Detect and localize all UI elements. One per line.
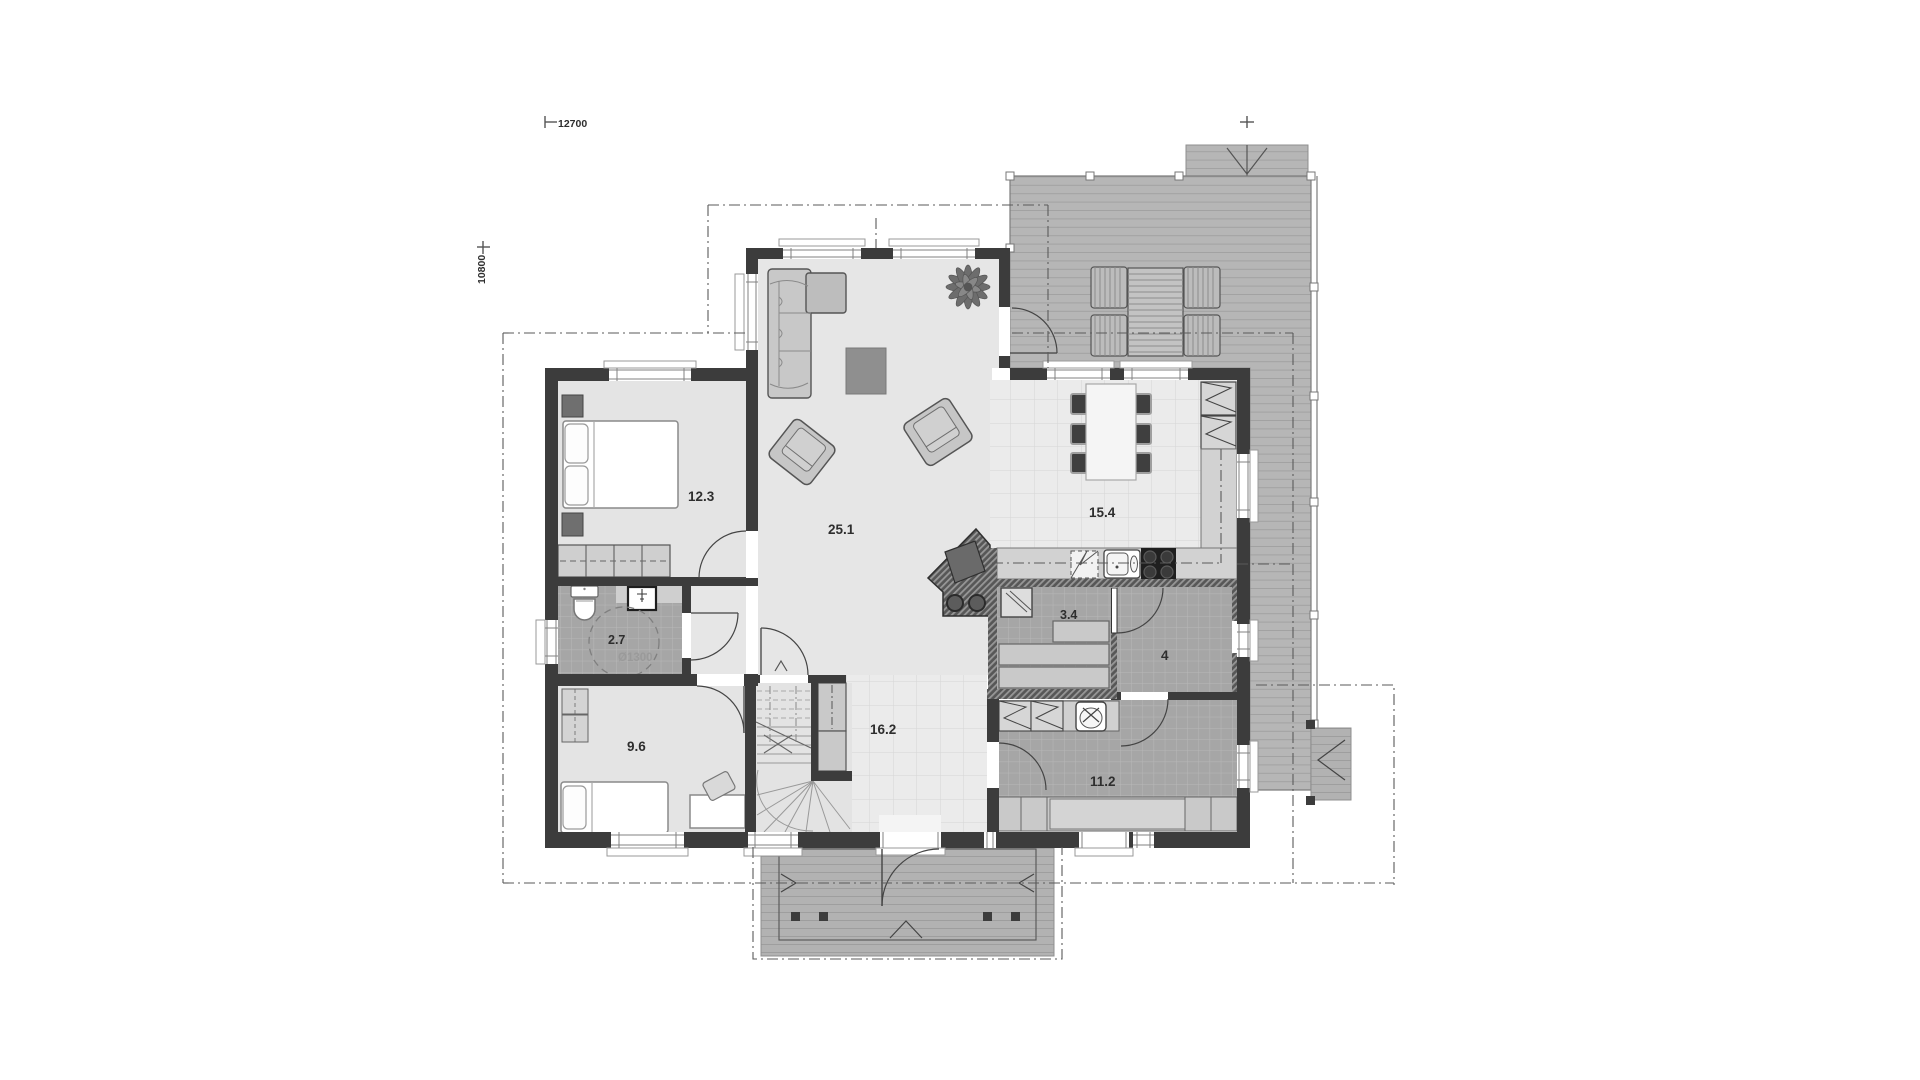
svg-text:9.6: 9.6 (627, 739, 646, 754)
svg-text:11.2: 11.2 (1090, 774, 1116, 789)
svg-text:2.7: 2.7 (608, 633, 625, 647)
svg-text:15.4: 15.4 (1089, 505, 1116, 520)
svg-text:4: 4 (1161, 648, 1169, 663)
svg-text:12700: 12700 (558, 118, 587, 130)
svg-text:3.4: 3.4 (1060, 608, 1077, 622)
svg-text:12.3: 12.3 (688, 489, 715, 504)
svg-text:16.2: 16.2 (870, 722, 896, 737)
svg-text:10800: 10800 (476, 255, 488, 284)
svg-text:25.1: 25.1 (828, 522, 855, 537)
svg-text:Ø1300: Ø1300 (618, 652, 653, 664)
